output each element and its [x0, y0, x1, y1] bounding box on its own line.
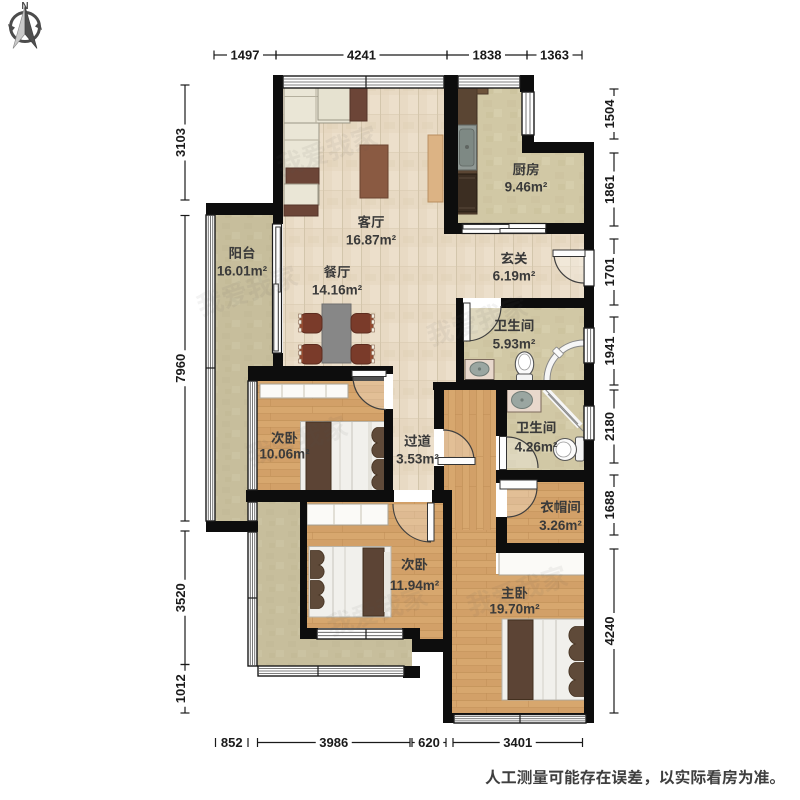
svg-text:4241: 4241 [347, 48, 376, 63]
svg-text:1941: 1941 [602, 337, 617, 366]
svg-text:19.70m²: 19.70m² [489, 601, 540, 616]
svg-text:16.87m²: 16.87m² [346, 232, 397, 247]
svg-text:14.16m²: 14.16m² [312, 282, 363, 297]
svg-text:3520: 3520 [173, 583, 188, 612]
svg-text:2180: 2180 [602, 412, 617, 441]
svg-text:1701: 1701 [602, 258, 617, 287]
svg-text:620: 620 [418, 735, 440, 750]
svg-text:N: N [21, 1, 28, 12]
svg-text:9.46m²: 9.46m² [505, 179, 548, 194]
svg-text:1861: 1861 [602, 175, 617, 204]
svg-text:6.19m²: 6.19m² [493, 268, 536, 283]
svg-text:5.93m²: 5.93m² [493, 336, 536, 351]
svg-text:1497: 1497 [231, 48, 260, 63]
svg-text:3.53m²: 3.53m² [396, 451, 439, 466]
svg-text:1838: 1838 [473, 48, 502, 63]
svg-text:3103: 3103 [173, 128, 188, 157]
svg-text:4240: 4240 [602, 617, 617, 646]
svg-text:3.26m²: 3.26m² [539, 518, 582, 533]
svg-text:3986: 3986 [319, 735, 348, 750]
svg-text:852: 852 [221, 735, 243, 750]
svg-text:1363: 1363 [540, 48, 569, 63]
svg-text:1504: 1504 [602, 99, 617, 129]
svg-text:7960: 7960 [173, 354, 188, 383]
svg-text:1688: 1688 [602, 491, 617, 520]
svg-text:1012: 1012 [173, 674, 188, 703]
svg-text:4.26m²: 4.26m² [515, 439, 558, 454]
svg-text:3401: 3401 [503, 735, 532, 750]
